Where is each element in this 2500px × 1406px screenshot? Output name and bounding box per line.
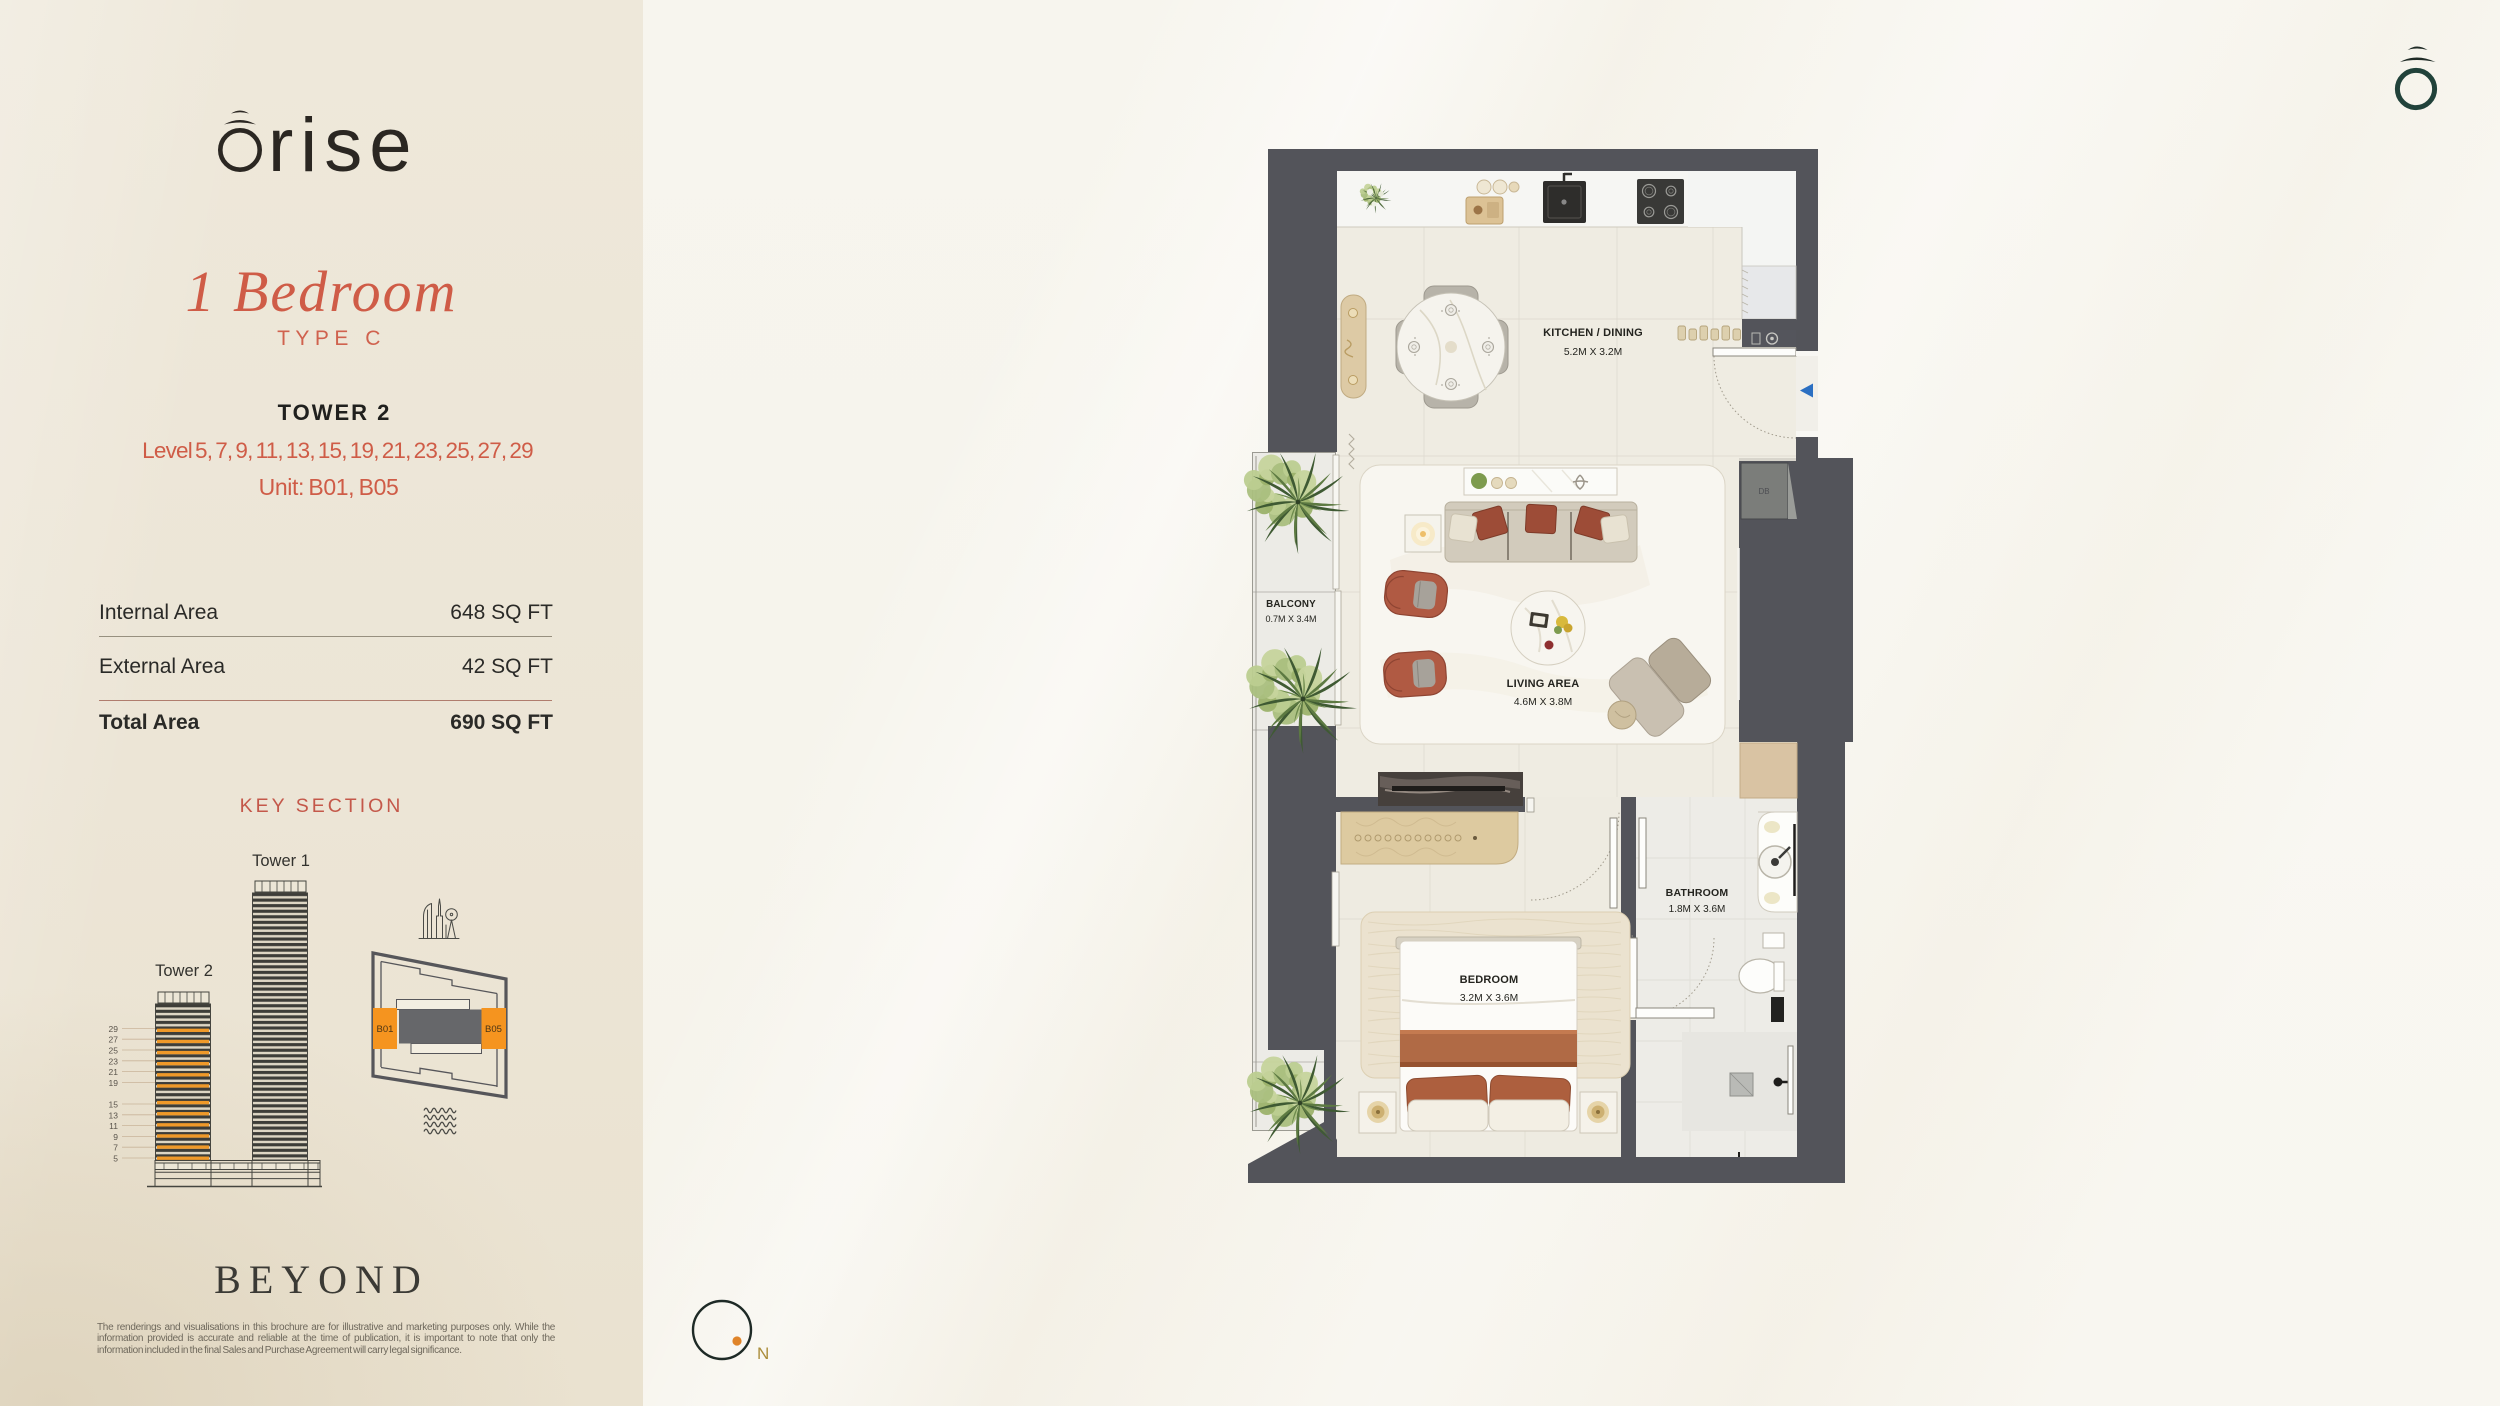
svg-text:7: 7	[113, 1143, 118, 1153]
svg-text:Tower 2: Tower 2	[155, 962, 213, 980]
svg-text:9: 9	[113, 1132, 118, 1142]
svg-text:BALCONY: BALCONY	[1266, 599, 1316, 610]
svg-text:13: 13	[109, 1110, 119, 1120]
svg-text:KITCHEN / DINING: KITCHEN / DINING	[1543, 327, 1643, 339]
svg-text:BEDROOM: BEDROOM	[1460, 974, 1519, 986]
svg-text:19: 19	[109, 1078, 119, 1088]
svg-text:5: 5	[113, 1154, 118, 1164]
svg-text:5.2M X 3.2M: 5.2M X 3.2M	[1564, 347, 1622, 358]
svg-text:21: 21	[109, 1067, 119, 1077]
svg-text:4.6M X 3.8M: 4.6M X 3.8M	[1514, 697, 1572, 708]
svg-text:3.2M X 3.6M: 3.2M X 3.6M	[1460, 993, 1518, 1004]
svg-text:BATHROOM: BATHROOM	[1666, 887, 1729, 899]
svg-text:N: N	[757, 1344, 769, 1363]
svg-text:1.8M X 3.6M: 1.8M X 3.6M	[1669, 904, 1726, 915]
svg-text:0.7M X 3.4M: 0.7M X 3.4M	[1265, 614, 1316, 624]
svg-text:Tower 1: Tower 1	[252, 852, 310, 870]
svg-text:B01: B01	[377, 1024, 394, 1035]
svg-text:29: 29	[109, 1024, 119, 1034]
svg-text:27: 27	[109, 1035, 119, 1045]
svg-text:DB: DB	[1758, 487, 1769, 496]
svg-text:15: 15	[109, 1100, 119, 1110]
svg-text:11: 11	[109, 1121, 118, 1131]
svg-text:23: 23	[109, 1056, 119, 1066]
svg-text:B05: B05	[485, 1024, 502, 1035]
svg-text:LIVING AREA: LIVING AREA	[1507, 678, 1580, 690]
svg-text:25: 25	[109, 1046, 119, 1056]
svg-text:rise: rise	[268, 103, 418, 180]
